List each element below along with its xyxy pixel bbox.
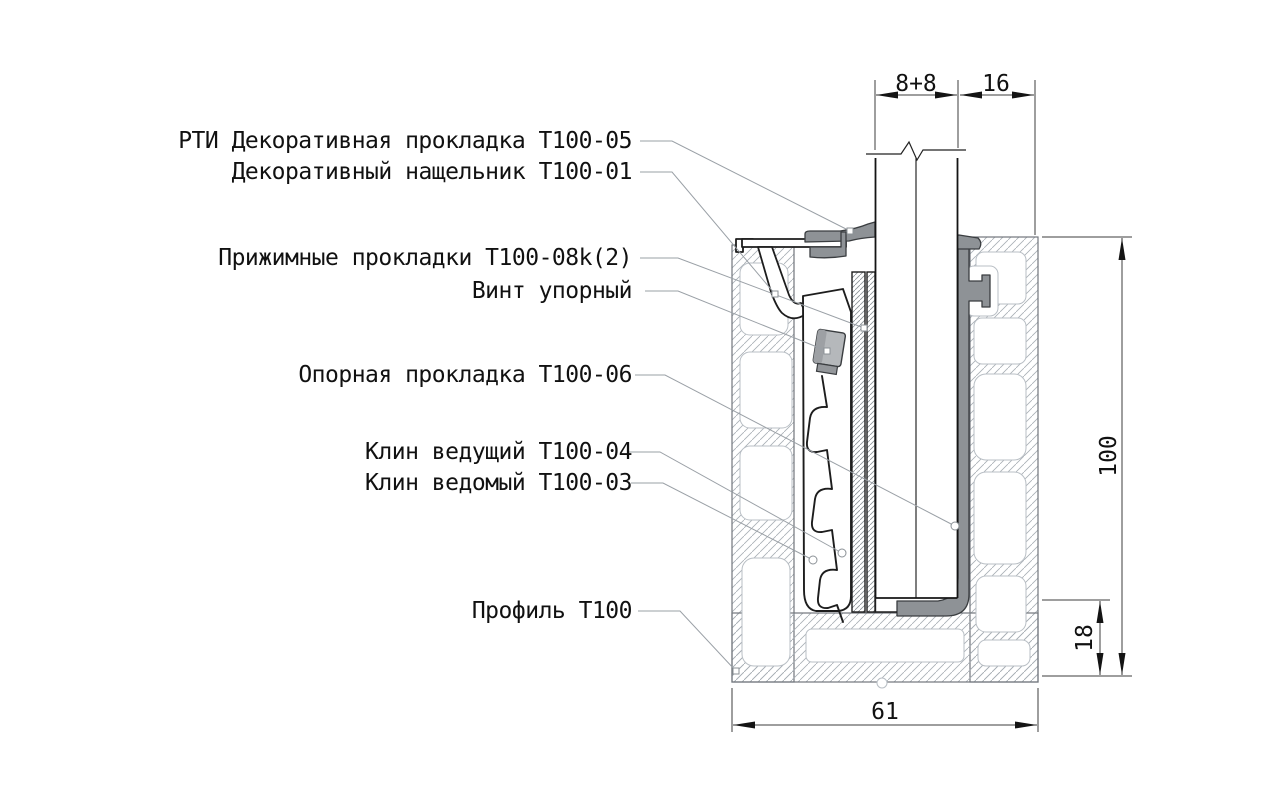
label-pressure-gaskets: Прижимные прокладки Т100-08k(2): [218, 243, 632, 273]
dim-rebate: 16: [982, 71, 1010, 97]
dim-bottom-shelf: 18: [1072, 624, 1098, 652]
bottom-edge-notch: [877, 678, 887, 688]
label-stop-screw: Винт упорный: [472, 276, 632, 306]
label-decorative-gasket: РТИ Декоративная прокладка Т100-05: [178, 126, 632, 156]
label-support-gasket: Опорная прокладка Т100-06: [298, 360, 632, 390]
dim-glass-pack: 8+8: [895, 71, 937, 97]
label-profile: Профиль Т100: [472, 596, 632, 626]
glass-panes: [866, 142, 966, 612]
technical-drawing-page: РТИ Декоративная прокладка Т100-05 Декор…: [0, 0, 1280, 799]
label-driving-wedge: Клин ведущий Т100-04: [365, 437, 632, 467]
label-driven-wedge: Клин ведомый Т100-03: [365, 468, 632, 498]
cross-section-drawing: [0, 0, 1280, 799]
pressure-gasket-strips: [852, 272, 875, 612]
dim-height: 100: [1096, 435, 1122, 477]
dim-width: 61: [871, 699, 899, 725]
rti-decorative-gasket: [805, 222, 875, 258]
label-decorative-cover: Декоративный нащельник Т100-01: [232, 157, 632, 187]
